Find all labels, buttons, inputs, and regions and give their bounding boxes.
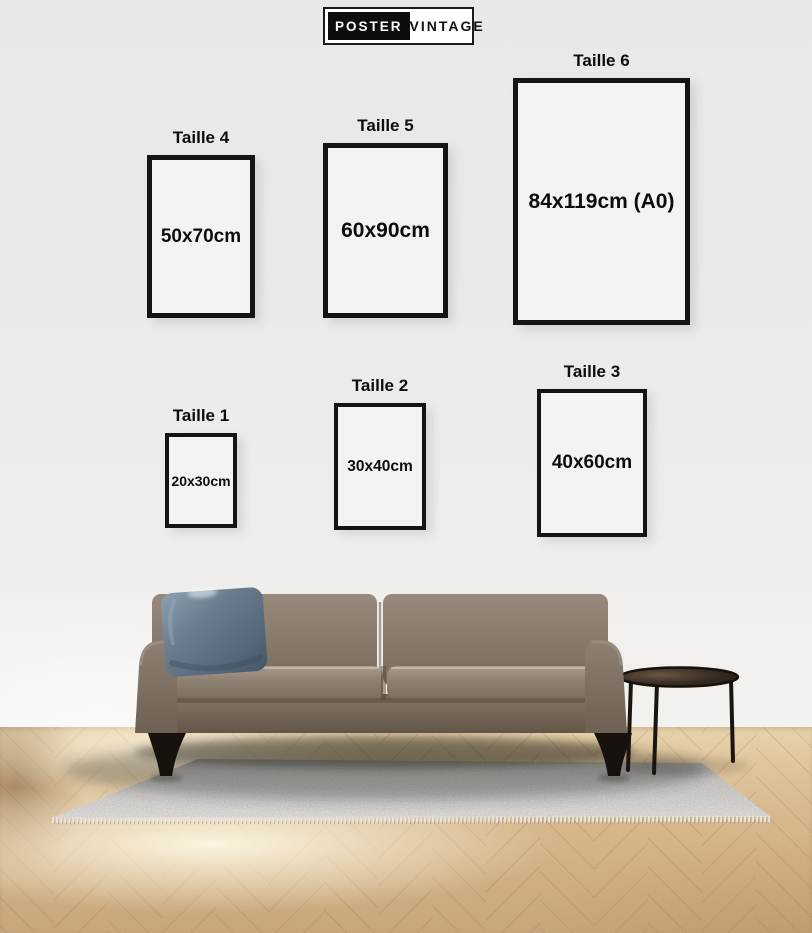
size-option-taille-6: Taille 6 84x119cm (A0) [513, 78, 690, 325]
sofa-seat-cushion-right [387, 666, 612, 700]
size-frame: 30x40cm [334, 403, 426, 530]
size-dimensions: 30x40cm [347, 458, 413, 476]
size-dimensions: 60x90cm [341, 219, 430, 243]
size-label: Taille 6 [493, 51, 710, 71]
size-option-taille-4: Taille 4 50x70cm [147, 155, 255, 318]
size-dimensions: 40x60cm [552, 452, 632, 474]
size-label: Taille 5 [303, 116, 468, 136]
size-dimensions: 50x70cm [161, 226, 241, 248]
size-label: Taille 2 [314, 376, 446, 396]
brand-logo: POSTER VINTAGE [323, 7, 474, 45]
size-frame: 84x119cm (A0) [513, 78, 690, 325]
size-frame: 60x90cm [323, 143, 448, 318]
table-top [620, 668, 738, 687]
size-option-taille-2: Taille 2 30x40cm [334, 403, 426, 530]
size-label: Taille 3 [517, 362, 667, 382]
throw-pillow [160, 584, 268, 678]
size-dimensions: 20x30cm [171, 473, 230, 489]
size-frame: 40x60cm [537, 389, 647, 537]
size-label: Taille 4 [127, 128, 275, 148]
size-option-taille-1: Taille 1 20x30cm [165, 433, 237, 528]
table-shadow [621, 757, 749, 775]
size-frame: 20x30cm [165, 433, 237, 528]
size-option-taille-5: Taille 5 60x90cm [323, 143, 448, 318]
brand-logo-primary: POSTER [328, 12, 410, 40]
sofa-arm-right [585, 640, 627, 733]
brand-logo-secondary: VINTAGE [410, 12, 485, 40]
size-option-taille-3: Taille 3 40x60cm [537, 389, 647, 537]
size-frame: 50x70cm [147, 155, 255, 318]
size-dimensions: 84x119cm (A0) [529, 190, 675, 214]
size-label: Taille 1 [145, 406, 257, 426]
